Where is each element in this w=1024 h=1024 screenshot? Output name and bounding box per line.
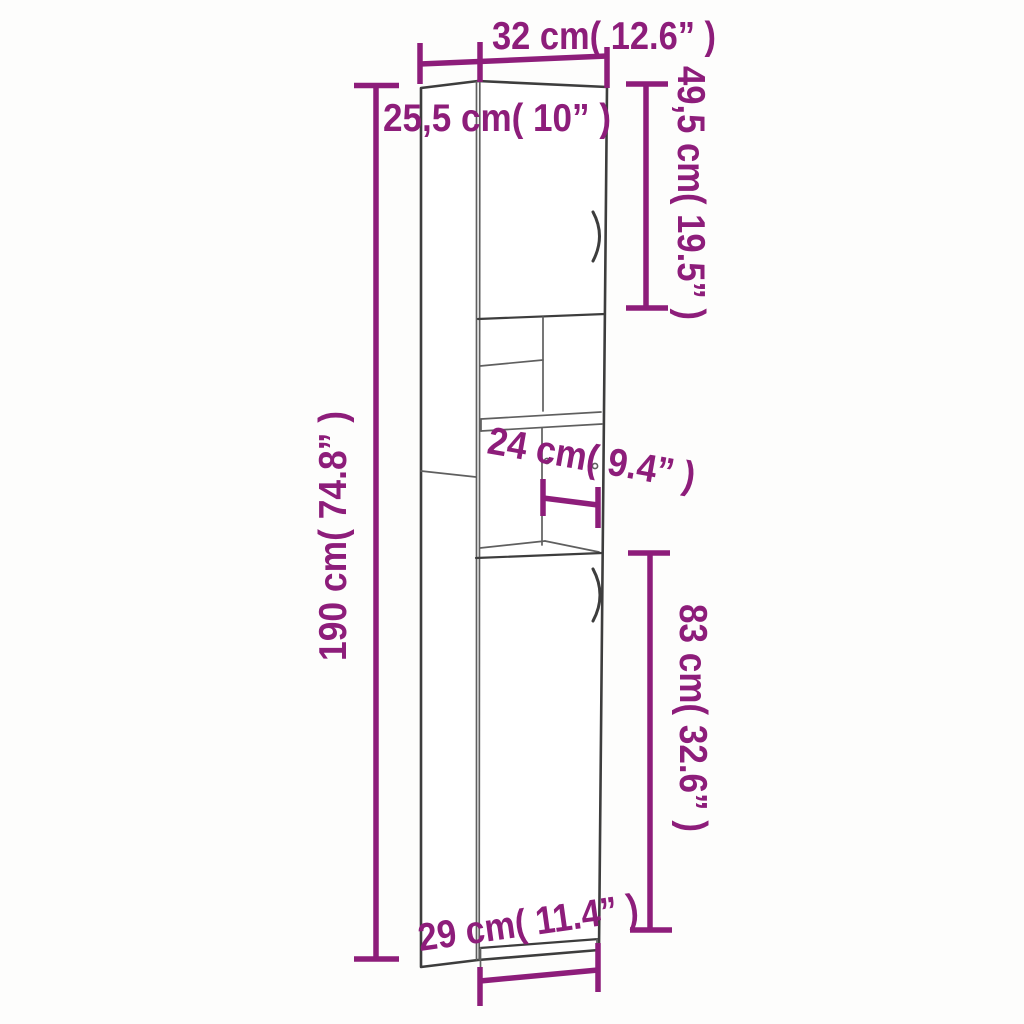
dimension-total-height: 190 cm( 74.8” ) [312, 86, 399, 960]
cabinet-silhouette [421, 81, 607, 967]
cabinet-drawing [421, 81, 607, 970]
label-lower-door-height: 83 cm( 32.6” ) [671, 604, 714, 832]
page: 32 cm( 12.6” ) 25,5 cm( 10” ) 190 cm( 74… [0, 0, 1024, 1024]
label-upper-door-height: 49,5 cm( 19.5” ) [669, 66, 712, 320]
dimension-lower-door-height: 83 cm( 32.6” ) [628, 553, 714, 930]
label-total-height: 190 cm( 74.8” ) [312, 411, 355, 661]
label-top-width: 32 cm( 12.6” ) [492, 15, 716, 58]
dimension-top-depth: 25,5 cm( 10” ) [383, 97, 611, 140]
dimension-line [480, 970, 598, 981]
cabinet-corner-fold [479, 81, 480, 959]
cabinet-dimension-diagram: 32 cm( 12.6” ) 25,5 cm( 10” ) 190 cm( 74… [0, 0, 1024, 1024]
dimension-upper-door-height: 49,5 cm( 19.5” ) [626, 66, 712, 320]
label-top-depth: 25,5 cm( 10” ) [383, 97, 611, 140]
